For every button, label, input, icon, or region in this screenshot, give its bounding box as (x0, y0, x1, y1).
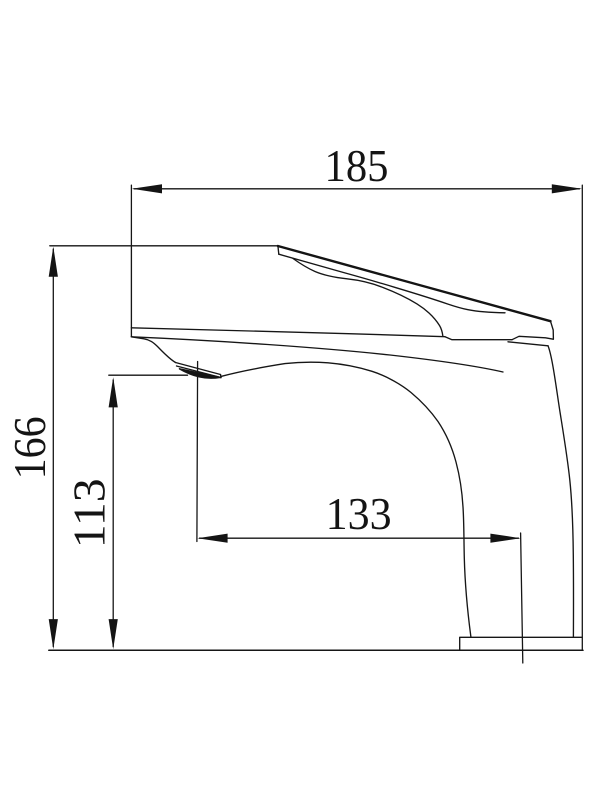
svg-text:133: 133 (326, 488, 392, 539)
svg-text:166: 166 (4, 416, 55, 479)
svg-text:113: 113 (64, 478, 115, 548)
svg-text:185: 185 (325, 140, 389, 191)
